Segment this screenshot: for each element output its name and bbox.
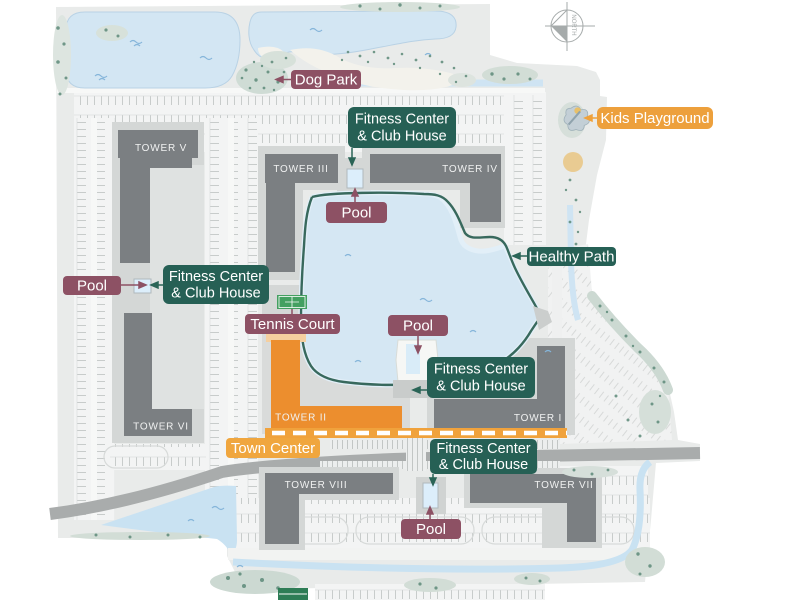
svg-text:TOWER V: TOWER V	[135, 143, 187, 154]
svg-text:& Club House: & Club House	[436, 379, 525, 395]
svg-text:TOWER VIII: TOWER VIII	[285, 480, 348, 491]
svg-text:TOWER II: TOWER II	[275, 413, 327, 424]
svg-text:Dog Park: Dog Park	[295, 72, 358, 89]
svg-text:Pool: Pool	[77, 278, 107, 295]
svg-text:Fitness Center: Fitness Center	[436, 441, 530, 457]
svg-text:TOWER IV: TOWER IV	[442, 164, 498, 175]
svg-text:& Club House: & Club House	[439, 457, 528, 473]
svg-text:Healthy Path: Healthy Path	[529, 249, 615, 266]
svg-text:TOWER VII: TOWER VII	[534, 480, 593, 491]
svg-text:Town Center: Town Center	[231, 440, 315, 457]
svg-text:Pool: Pool	[341, 205, 371, 222]
svg-text:& Club House: & Club House	[357, 129, 446, 145]
svg-text:TOWER III: TOWER III	[273, 164, 328, 175]
svg-text:TOWER VI: TOWER VI	[133, 422, 189, 433]
svg-text:TOWER I: TOWER I	[514, 413, 562, 424]
svg-text:& Club House: & Club House	[171, 286, 260, 302]
svg-text:Pool: Pool	[416, 521, 446, 538]
svg-text:Kids Playground: Kids Playground	[600, 110, 709, 127]
svg-text:Fitness Center: Fitness Center	[434, 362, 528, 378]
svg-text:Fitness Center: Fitness Center	[355, 112, 449, 128]
svg-text:Pool: Pool	[403, 318, 433, 335]
svg-text:Tennis Court: Tennis Court	[250, 316, 335, 333]
svg-text:Fitness Center: Fitness Center	[169, 269, 263, 285]
svg-text:NORTH: NORTH	[570, 14, 576, 35]
